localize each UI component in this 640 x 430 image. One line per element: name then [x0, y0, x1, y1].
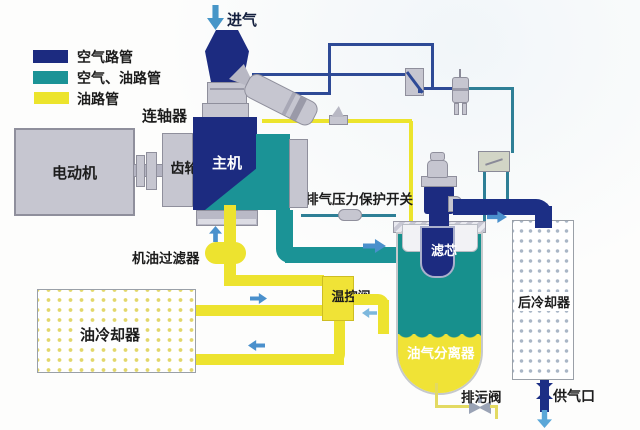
intake-base-line: [210, 88, 244, 90]
valve-to-separator-drop: [378, 300, 389, 334]
legend-label-air-oil-pipe: 空气、油路管: [77, 68, 161, 88]
air-line-top: [328, 43, 434, 46]
sensor-leg-right: [462, 103, 467, 115]
coupling-flange-right: [146, 152, 157, 190]
oil-filter-label: 机油过滤器: [132, 247, 200, 267]
outlet-flow-arrow-icon: [537, 410, 552, 428]
valve-return-arrow-icon: [362, 308, 377, 318]
legend-label-air-pipe: 空气路管: [77, 47, 133, 67]
drain-line-down: [495, 405, 498, 419]
gearbox-label: 齿轮箱: [171, 162, 185, 177]
intake-valve-base: [207, 82, 247, 104]
check-valve-left-line: [483, 170, 486, 224]
check-valve-mark: [485, 158, 503, 165]
cooler-in-flow-arrow-icon: [248, 340, 265, 351]
compressed-air-pipe-drop: [535, 206, 552, 228]
airend-side-plate: [289, 139, 308, 208]
cooler-out-flow-arrow-icon: [250, 293, 267, 304]
motor-body: 电动机: [14, 128, 135, 216]
oil-pipe-cooler-out: [196, 305, 322, 316]
check-valve-feed-line: [511, 87, 514, 153]
control-valve-body: [405, 68, 424, 96]
oil-filter-flow-arrow-icon: [209, 226, 222, 242]
gearbox-body: 齿轮箱: [162, 133, 193, 207]
sensor-leg-left: [454, 103, 459, 115]
airend-label: 主机: [212, 152, 242, 173]
legend-label-oil-pipe: 油路管: [77, 89, 119, 109]
after-cooler-label: 后冷却器: [516, 292, 572, 311]
oil-level-wave: [398, 329, 481, 341]
pressure-switch-label: 排气压力保护开关: [305, 188, 413, 208]
compressor-flow-diagram: 空气路管 空气、油路管 油路管 排气压力保护开关 进气 电动机 连轴器 齿轮箱: [0, 0, 640, 430]
pressure-sensor-body: [452, 77, 469, 103]
pressure-switch-body: [338, 209, 362, 221]
separator-label: 油气分离器: [407, 342, 475, 362]
intake-label: 进气: [227, 9, 257, 30]
motor-label: 电动机: [52, 162, 97, 183]
coupling-flange-left: [136, 155, 145, 187]
air-outlet-label: 供气口: [553, 386, 595, 406]
mpv-cap-tip: [430, 152, 445, 161]
intake-flow-arrow-icon: [207, 5, 224, 30]
mpv-cap: [427, 160, 448, 178]
air-line-riser: [328, 43, 331, 95]
air-line-to-sensor: [424, 87, 453, 90]
oil-pipe-to-valve: [224, 275, 324, 286]
check-valve-right-line: [506, 170, 509, 202]
temp-valve-body: 温控阀: [322, 276, 354, 321]
temp-valve-label: 温控阀: [332, 291, 345, 305]
legend-swatch-oil-pipe: [34, 92, 69, 104]
oil-pipe-cooler-in: [196, 354, 344, 365]
legend-swatch-air-pipe: [33, 50, 68, 63]
airend-discharge-casing: [256, 134, 290, 210]
sensor-band: [453, 88, 468, 91]
filter-element-label: 滤芯: [431, 245, 444, 259]
oil-filter-body: [205, 242, 246, 264]
valve-bottom-elbow: [334, 321, 345, 365]
oil-cooler-label: 油冷却器: [78, 324, 142, 345]
sensor-line-right: [469, 87, 514, 90]
mpv-neck: [429, 212, 449, 226]
coupling-label: 连轴器: [142, 108, 157, 124]
air-line-drop: [431, 43, 434, 90]
control-line-fitting-cap: [331, 106, 344, 117]
filter-element-body: 滤芯: [420, 226, 455, 278]
drain-line-vertical: [435, 383, 438, 407]
drain-valve-label: 排污阀: [461, 386, 502, 406]
legend-swatch-air-oil-pipe: [33, 71, 68, 84]
control-valve-dot: [418, 89, 422, 93]
vent-check-valve: [478, 151, 510, 172]
